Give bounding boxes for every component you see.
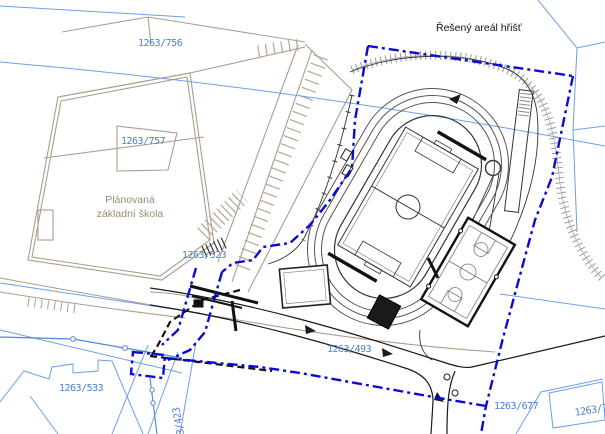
- parcel-label-493: 1263/493: [327, 344, 371, 355]
- utility-node-2: [123, 346, 128, 351]
- site-plan-canvas: Řešený areál hřišť Plánovaná základní šk…: [0, 0, 605, 434]
- sand-pit-hatch: [523, 93, 526, 116]
- school-wing-outline: [117, 126, 177, 171]
- long-jump-runway: [504, 90, 533, 213]
- parcel-533-outline: [0, 360, 143, 434]
- parcel-label-677: 1263/677: [494, 401, 538, 412]
- road-423-edge-1: [112, 345, 148, 434]
- throw-circle: [486, 161, 501, 176]
- cadastre-line-top: [0, 6, 185, 17]
- school-label-line1: Plánovaná: [85, 194, 175, 208]
- barrier-wall-south: [328, 253, 376, 281]
- parking-west-edge: [218, 45, 298, 262]
- goal-top: [434, 140, 452, 152]
- cadastre-line-east: [500, 294, 605, 309]
- cadastre-branch-1: [577, 42, 605, 48]
- barrier-wall-north: [438, 132, 486, 160]
- halfway-line: [372, 186, 445, 228]
- boundary-corridor-west: [162, 268, 196, 345]
- goal-bottom: [364, 261, 382, 273]
- parking-stalls-hatch: [28, 44, 321, 309]
- parcel-label-533: 1263/533: [59, 383, 103, 394]
- manhole-1: [444, 374, 450, 380]
- school-building-outline-inner: [32, 77, 210, 276]
- equipment-box-1: [341, 149, 352, 161]
- boundary-south: [165, 358, 486, 406]
- school-label-line2: základní škola: [85, 208, 175, 222]
- site-buildings: [279, 265, 400, 329]
- utility-node-3: [150, 388, 154, 392]
- parcel-533-inner-line: [30, 396, 58, 434]
- path-arrow-north: [449, 94, 461, 104]
- parcel-756-bottom-edge: [58, 47, 305, 97]
- perimeter-path-west: [268, 95, 352, 264]
- roads: [150, 94, 605, 434]
- side-road-east-curb: [447, 371, 455, 434]
- parcel-label-523: 1263/523: [182, 250, 226, 261]
- parking-east-edge: [248, 44, 352, 292]
- dark-building: [367, 295, 400, 329]
- parking-aisle-line: [232, 50, 312, 282]
- road-arrow-2: [382, 348, 393, 357]
- school-building-outline: [28, 73, 214, 280]
- manhole-2: [452, 390, 458, 396]
- parcel-756-top-edge: [62, 17, 305, 42]
- school-label: Plánovaná základní škola: [85, 194, 175, 221]
- parcel-label-756: 1263/756: [138, 38, 182, 49]
- utility-node-1: [71, 337, 76, 342]
- utility-node-4: [151, 401, 155, 405]
- pavilion-building: [279, 265, 330, 308]
- drawing-title: Řešený areál hřišť: [436, 22, 522, 34]
- parcel-label-757: 1263/757: [121, 136, 165, 147]
- cadastre-branch-2: [573, 126, 605, 130]
